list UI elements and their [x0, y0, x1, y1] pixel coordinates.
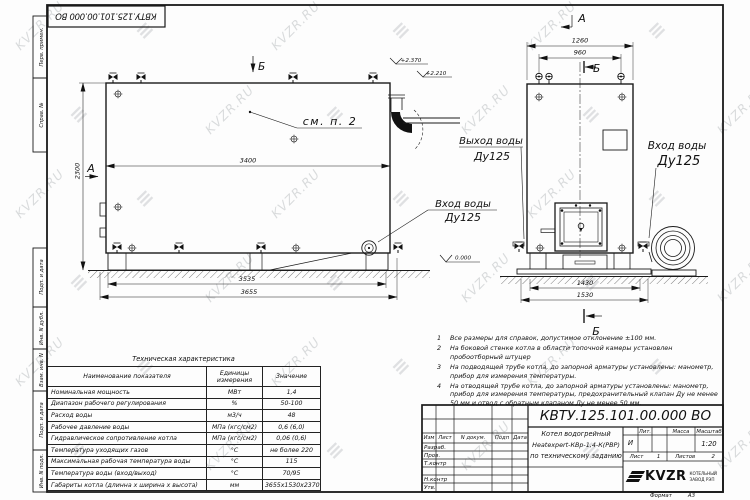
tech-row: Гидравлическое сопротивление котлаМПа (к…: [48, 433, 321, 445]
tech-units: %: [207, 398, 263, 410]
row-tkontr: Т.контр: [424, 461, 454, 467]
margin-label-podp-data-1: Подп. и дата: [39, 259, 45, 294]
note-reference: см. п. 2: [303, 115, 358, 128]
tech-name: Температура воды (вход/выход): [48, 468, 207, 480]
header-massa: Масса: [667, 429, 695, 435]
header-podp: Подп: [492, 435, 512, 441]
row-prov: Пров.: [424, 453, 454, 459]
tech-name: Максимальная рабочая температура воды: [48, 456, 207, 468]
tech-value: 3655х1530х2370: [263, 479, 321, 491]
sheet-label: Лист: [630, 454, 644, 460]
tech-name: Температура уходящих газов: [48, 444, 207, 456]
tech-value: 115: [263, 456, 321, 468]
note-text: На отводящей трубе котла, до запорной ар…: [450, 382, 720, 408]
tech-col-value: Значение: [263, 367, 321, 387]
header-izm: Изм: [422, 435, 436, 441]
tech-units: м3/ч: [207, 410, 263, 422]
tech-name: Расход воды: [48, 410, 207, 422]
tech-value: не более 220: [263, 444, 321, 456]
front-view-annotations: А Б Б Выход воды Ду125 Вход воды Ду125: [459, 12, 706, 338]
tech-units: °С: [207, 444, 263, 456]
doc-name-line2: Heatexpert-КВр-1,4-К(РВР): [529, 441, 623, 449]
section-marker-b: Б: [258, 61, 265, 73]
row-razrab: Разраб.: [424, 445, 454, 451]
tech-row: Максимальная рабочая температура воды°С1…: [48, 456, 321, 468]
tech-col-name: Наименование показателя: [48, 367, 207, 387]
margin-label-vzam-inv: Взам. инв. N: [39, 353, 45, 387]
margin-label-perv-primen: Перв. примен.: [39, 28, 45, 67]
front-outlet-label: Выход воды: [459, 136, 523, 147]
doc-name-line1: Котел водогрейный: [529, 430, 623, 438]
tech-name: Диапазон рабочего регулирования: [48, 398, 207, 410]
tech-units: мм: [207, 479, 263, 491]
tech-table: Наименование показателя Единицы измерени…: [47, 366, 321, 491]
format-row: Формат А3: [650, 493, 750, 499]
tech-name: Гидравлическое сопротивление котла: [48, 433, 207, 445]
front-inlet-dn: Ду125: [657, 154, 701, 169]
note-item: 3На подводящей трубе котла, до запорной …: [437, 363, 720, 380]
dim-1430: 1430: [577, 279, 594, 287]
note-text: На боковой стенке котла в области топочн…: [450, 344, 720, 361]
tech-units: °С: [207, 468, 263, 480]
note-text: На подводящей трубе котла, до запорной а…: [450, 363, 720, 380]
header-data: Дата: [512, 435, 528, 441]
dim-3400: 3400: [240, 157, 257, 165]
rotated-designation-stamp: КВТУ.125.101.00.000 ВО: [55, 11, 157, 21]
scale-value: 1:20: [695, 440, 723, 448]
note-item: 1Все размеры для справок, допустимое отк…: [437, 334, 720, 343]
tech-row: Рабочее давление водыМПа (кгс/см2)0,6 (6…: [48, 421, 321, 433]
sheets-value: 2: [711, 454, 714, 460]
margin-label-podp-data-2: Подп. и дата: [39, 402, 45, 437]
tech-row: Габариты котла (длинна х ширина х высота…: [48, 479, 321, 491]
tech-row: Расход водым3/ч48: [48, 410, 321, 422]
front-inlet-label: Вход воды: [648, 140, 707, 152]
note-number: 2: [437, 344, 450, 361]
header-list: Лист: [436, 435, 454, 441]
tech-value: 48: [263, 410, 321, 422]
dim-2300: 2300: [74, 163, 82, 180]
side-inlet-label: Вход воды: [435, 199, 491, 210]
logo-bars-icon: [626, 471, 645, 482]
margin-label-inv-dubl: Инв. N дубл.: [39, 311, 45, 345]
logo-subtext-2: ЗАВОД РЭП: [690, 477, 717, 482]
tech-col-units: Единицы измерения: [207, 367, 263, 387]
row-utv: Утв.: [424, 485, 454, 491]
tech-units: °С: [207, 456, 263, 468]
tech-value: 0,6 (6,0): [263, 421, 321, 433]
note-item: 2На боковой стенке котла в области топоч…: [437, 344, 720, 361]
doc-designation: КВТУ.125.101.00.000 ВО: [529, 407, 722, 426]
tech-name: Габариты котла (длинна х ширина х высота…: [48, 479, 207, 491]
sheets-label: Листов: [675, 454, 695, 460]
tech-units: МПа (кгс/см2): [207, 433, 263, 445]
tech-units: МВт: [207, 387, 263, 399]
tech-value: 50-100: [263, 398, 321, 410]
header-doc: N докум.: [454, 435, 492, 441]
tech-value: 70/95: [263, 468, 321, 480]
level-mark-2210: +2.210: [426, 71, 447, 77]
header-lit: Лит.: [623, 429, 667, 435]
section-marker-b-top: Б: [593, 63, 600, 75]
manufacturer-logo: KVZR КОТЕЛЬНЫЙ ЗАВОД РЭП: [624, 462, 722, 491]
note-text: Все размеры для справок, допустимое откл…: [450, 334, 720, 343]
side-view: [88, 73, 460, 278]
row-nkontr: Н.контр: [424, 477, 454, 483]
dim-1530: 1530: [577, 291, 594, 299]
doc-name-line3: по техническому заданию: [529, 452, 623, 460]
side-view-annotations: А Б см. п. 2 +2.370 +2.210 0.000 Вход во…: [85, 56, 497, 262]
note-number: 1: [437, 334, 450, 343]
format-value: А3: [688, 493, 695, 499]
level-mark-zero: 0.000: [455, 256, 471, 262]
tech-row: Температура уходящих газов°Сне более 220: [48, 444, 321, 456]
note-number: 4: [437, 382, 450, 408]
lit-value: И: [623, 439, 638, 447]
tech-value: 1,4: [263, 387, 321, 399]
tech-value: 0,06 (0,6): [263, 433, 321, 445]
format-label: Формат: [650, 493, 672, 499]
header-masshtab: Масштаб: [695, 429, 723, 435]
margin-label-inv-podl: Инв. N подл.: [39, 454, 45, 488]
front-view: [500, 62, 708, 284]
margin-labels: Перв. примен. Справ. № Подп. и дата Инв.…: [39, 28, 45, 489]
tech-row: Диапазон рабочего регулирования%50-100: [48, 398, 321, 410]
level-mark-2370: +2.370: [401, 58, 422, 64]
notes-list: 1Все размеры для справок, допустимое отк…: [437, 334, 720, 409]
logo-text: KVZR: [645, 469, 687, 484]
sheet-value: 1: [657, 454, 660, 460]
dim-960: 960: [574, 49, 586, 57]
dim-1260: 1260: [572, 37, 589, 45]
tech-table-title: Техническая характеристика: [47, 355, 320, 363]
dim-3535: 3535: [239, 275, 256, 283]
tech-name: Номинальная мощность: [48, 387, 207, 399]
dim-3655: 3655: [241, 288, 258, 296]
view-marker-a-front: А: [577, 12, 586, 25]
sheets-cell: Листов 2: [667, 454, 723, 460]
note-number: 3: [437, 363, 450, 380]
view-marker-a: А: [86, 162, 95, 175]
side-inlet-dn: Ду125: [444, 211, 481, 224]
front-outlet-dn: Ду125: [473, 150, 510, 163]
margin-label-sprav-no: Справ. №: [39, 102, 45, 127]
drawing-sheet: KVZR.RU≡KVZR.RU≡KVZR.RU≡≡KVZR.RU≡KVZR.RU…: [0, 0, 750, 500]
note-item: 4На отводящей трубе котла, до запорной а…: [437, 382, 720, 408]
tech-units: МПа (кгс/см2): [207, 421, 263, 433]
tech-name: Рабочее давление воды: [48, 421, 207, 433]
tech-row: Номинальная мощностьМВт1,4: [48, 387, 321, 399]
tech-row: Температура воды (вход/выход)°С70/95: [48, 468, 321, 480]
sheet-cell: Лист 1: [623, 454, 667, 460]
